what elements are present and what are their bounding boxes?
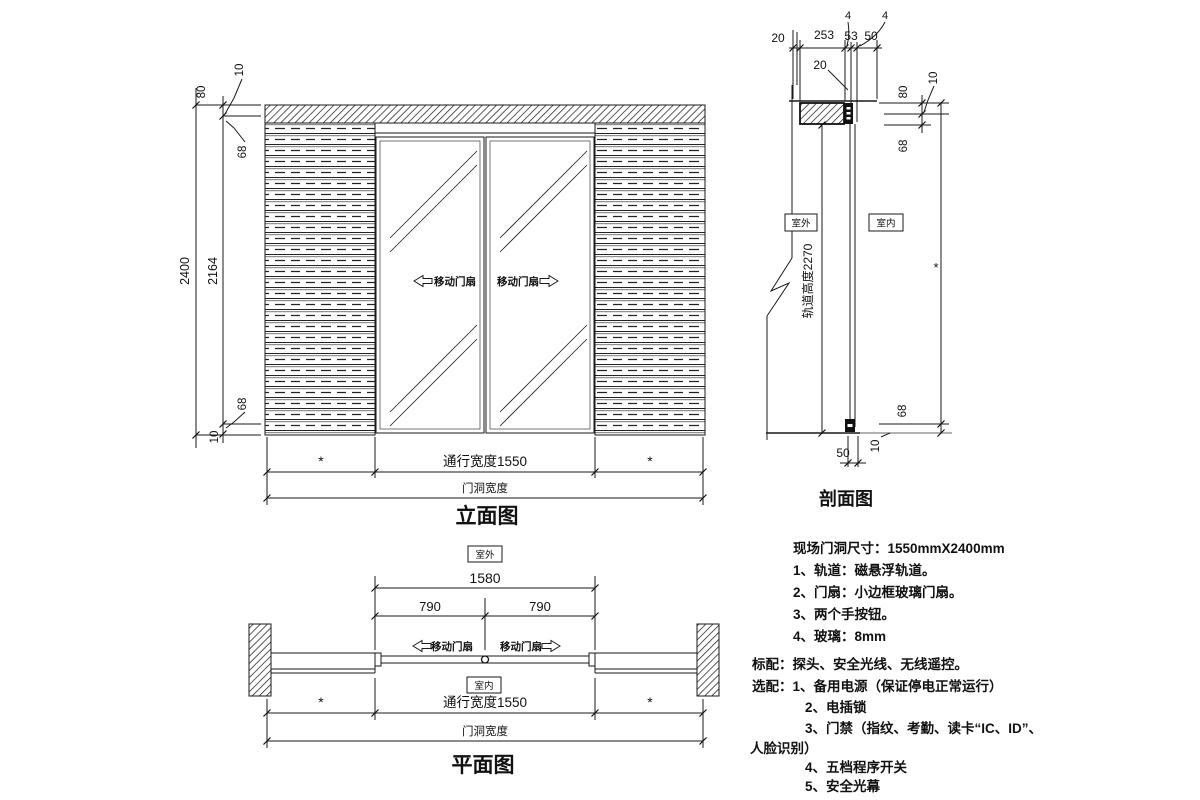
elevation-dimensions-left: 2400 2164 80 10 68 68 10 [178, 64, 261, 448]
elevation-view: 移动门扇 移动门扇 2400 2164 80 [178, 64, 707, 528]
plan-slide-arrow-left: 移动门扇 [413, 640, 473, 653]
note-optional-5: 5、安全光幕 [805, 778, 881, 794]
dim-top-gap: 10 [234, 64, 246, 77]
plan-dimensions-top: 1580 790 790 [372, 570, 599, 650]
plan-wall-block-right [697, 624, 719, 696]
outside-label: 室外 [791, 218, 811, 230]
dim-right-80: 80 [898, 86, 910, 99]
dim-glass-height: 2164 [206, 257, 220, 285]
dim-right-68-top: 68 [898, 140, 910, 153]
plan-view: 室外 室内 移动门扇 移动门扇 1580 790 7 [249, 546, 719, 777]
elevation-track-band [265, 105, 705, 123]
elevation-wall-right [595, 123, 705, 435]
elevation-structure: 移动门扇 移动门扇 [265, 105, 705, 435]
note-optional-2: 2、电插锁 [805, 699, 867, 715]
plan-slide-arrow-right: 移动门扇 [500, 640, 560, 653]
dim-total-height: 2400 [178, 257, 192, 285]
leaf-label-right: 移动门扇 [497, 275, 539, 288]
dim-opening-width: 门洞宽度 [462, 481, 508, 495]
cad-sheet: 移动门扇 移动门扇 2400 2164 80 [0, 0, 1200, 800]
note-spec-4: 4、玻璃：8mm [793, 628, 886, 644]
dim-top-rail: 68 [237, 146, 249, 159]
dim-1580: 1580 [469, 570, 500, 586]
dim-53: 53 [844, 29, 858, 43]
dim-4a: 4 [845, 10, 851, 22]
note-optional-4: 4、五档程序开关 [805, 759, 908, 775]
plan-leaf-label-left: 移动门扇 [431, 640, 473, 653]
notes-block: 现场门洞尺寸：1550mmX2400mm 1、轨道：磁悬浮轨道。 2、门扇：小边… [750, 540, 1042, 794]
dim-passage-width: 通行宽度1550 [443, 453, 527, 469]
section-height-label: 轨道高度2270 [800, 243, 815, 318]
plan-dim-star-right: * [647, 694, 653, 710]
section-structure: 轨道高度2270 室外 室内 [766, 85, 952, 440]
dim-right-68-bottom: 68 [897, 405, 909, 418]
dim-right-10-top: 10 [928, 72, 940, 85]
dim-4b: 4 [882, 10, 888, 22]
track-box [800, 103, 844, 124]
dim-top-track: 80 [196, 86, 208, 99]
note-spec-2: 2、门扇：小边框玻璃门扇。 [793, 584, 963, 600]
note-optional-head: 选配：1、备用电源（保证停电正常运行） [752, 678, 1003, 694]
dim-253: 253 [814, 28, 834, 42]
dim-right-star: * [933, 260, 938, 275]
note-optional-3-wrap: 人脸识别） [750, 740, 818, 756]
dim-20b: 20 [813, 58, 827, 72]
elevation-title: 立面图 [456, 504, 519, 528]
plan-outside-label: 室外 [475, 549, 495, 561]
plan-leaf-label-right: 移动门扇 [500, 640, 542, 653]
slide-arrow-left: 移动门扇 [414, 275, 476, 288]
elevation-wall-left [265, 123, 375, 435]
plan-dim-passage-width: 通行宽度1550 [443, 694, 527, 710]
section-dimensions-right: 80 10 68 * 68 10 [870, 72, 949, 453]
inside-label: 室内 [876, 218, 895, 230]
leaf-meeting-stile [482, 656, 489, 663]
leaf-label-left: 移动门扇 [434, 275, 476, 288]
section-dimension-bottom: 50 [836, 436, 866, 467]
plan-structure: 室外 室内 移动门扇 移动门扇 [249, 546, 719, 696]
slide-arrow-right: 移动门扇 [497, 275, 558, 288]
dim-20a: 20 [771, 31, 785, 45]
plan-dim-opening-width: 门洞宽度 [462, 724, 508, 738]
plan-leaf-right [485, 656, 595, 663]
drawing-canvas: 移动门扇 移动门扇 2400 2164 80 [0, 0, 1200, 800]
dim-bottom-gap: 10 [209, 431, 221, 444]
dim-790-left: 790 [419, 599, 441, 614]
dim-bottom-rail: 68 [237, 398, 249, 411]
plan-leaf-left [375, 656, 485, 663]
elevation-dimensions-bottom: * 通行宽度1550 * 门洞宽度 [264, 437, 707, 505]
dim-790-right: 790 [529, 599, 551, 614]
note-spec-3: 3、两个手按钮。 [793, 606, 895, 622]
dim-bottom-50: 50 [836, 446, 850, 460]
note-optional-3: 3、门禁（指纹、考勤、读卡“IC、ID”、 [805, 720, 1042, 736]
plan-inside-label: 室内 [474, 680, 493, 692]
section-view: 轨道高度2270 室外 室内 4 4 20 [766, 10, 952, 509]
plan-title: 平面图 [452, 754, 515, 777]
section-title: 剖面图 [819, 488, 873, 509]
note-standard: 标配：探头、安全光线、无线遥控。 [751, 656, 968, 672]
note-site-size: 现场门洞尺寸：1550mmX2400mm [793, 540, 1005, 556]
dim-50-top: 50 [864, 29, 878, 43]
dim-star-left: * [318, 453, 324, 469]
plan-dim-star-left: * [318, 694, 324, 710]
note-spec-1: 1、轨道：磁悬浮轨道。 [793, 562, 936, 578]
dim-right-10-bottom: 10 [870, 440, 882, 453]
dim-star-right: * [647, 453, 653, 469]
plan-wall-block-left [249, 624, 271, 696]
